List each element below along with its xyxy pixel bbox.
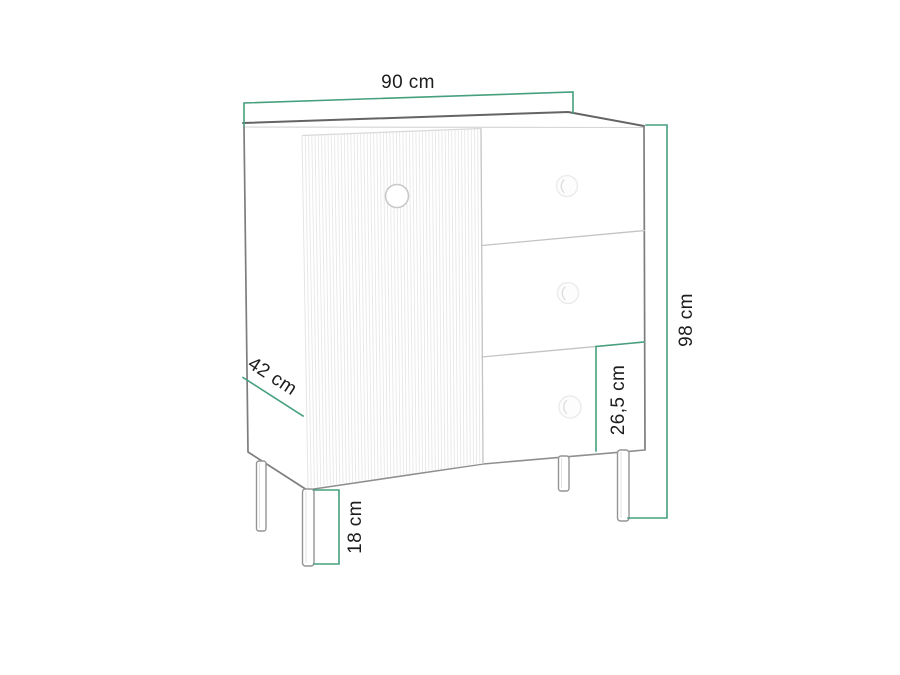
- leg-front-right: [618, 450, 630, 521]
- dimension-width-label: 90 cm: [381, 72, 435, 93]
- fluted-door: [302, 129, 483, 489]
- leg-back-left: [257, 461, 267, 531]
- drawer-knob-1-ring: [557, 176, 578, 197]
- door-knob: [386, 185, 409, 208]
- dimension-leg-height-line: [314, 490, 339, 564]
- drawer-knob-2-ring: [558, 283, 579, 304]
- dimension-drawer-height-label: 26,5 cm: [608, 365, 629, 435]
- dimension-leg-height-label: 18 cm: [345, 500, 366, 554]
- drawer-knob-3-ring: [559, 396, 581, 418]
- cabinet-front-top-edge: [244, 127, 644, 128]
- dimension-height-label: 98 cm: [676, 293, 697, 347]
- cabinet: [243, 112, 645, 566]
- diagram-canvas: 90 cm 98 cm 42 cm 26,5 cm 18 cm: [0, 0, 900, 675]
- leg-front-left: [303, 489, 315, 566]
- leg-back-right: [559, 456, 570, 491]
- drawer-knob-3: [559, 396, 581, 418]
- drawer-knob-2: [558, 283, 579, 304]
- drawer-knob-1: [557, 176, 578, 197]
- furniture-dimension-diagram: 90 cm 98 cm 42 cm 26,5 cm 18 cm: [0, 0, 900, 675]
- cabinet-right-edge: [644, 126, 645, 450]
- dimension-leg-height: 18 cm: [314, 490, 366, 564]
